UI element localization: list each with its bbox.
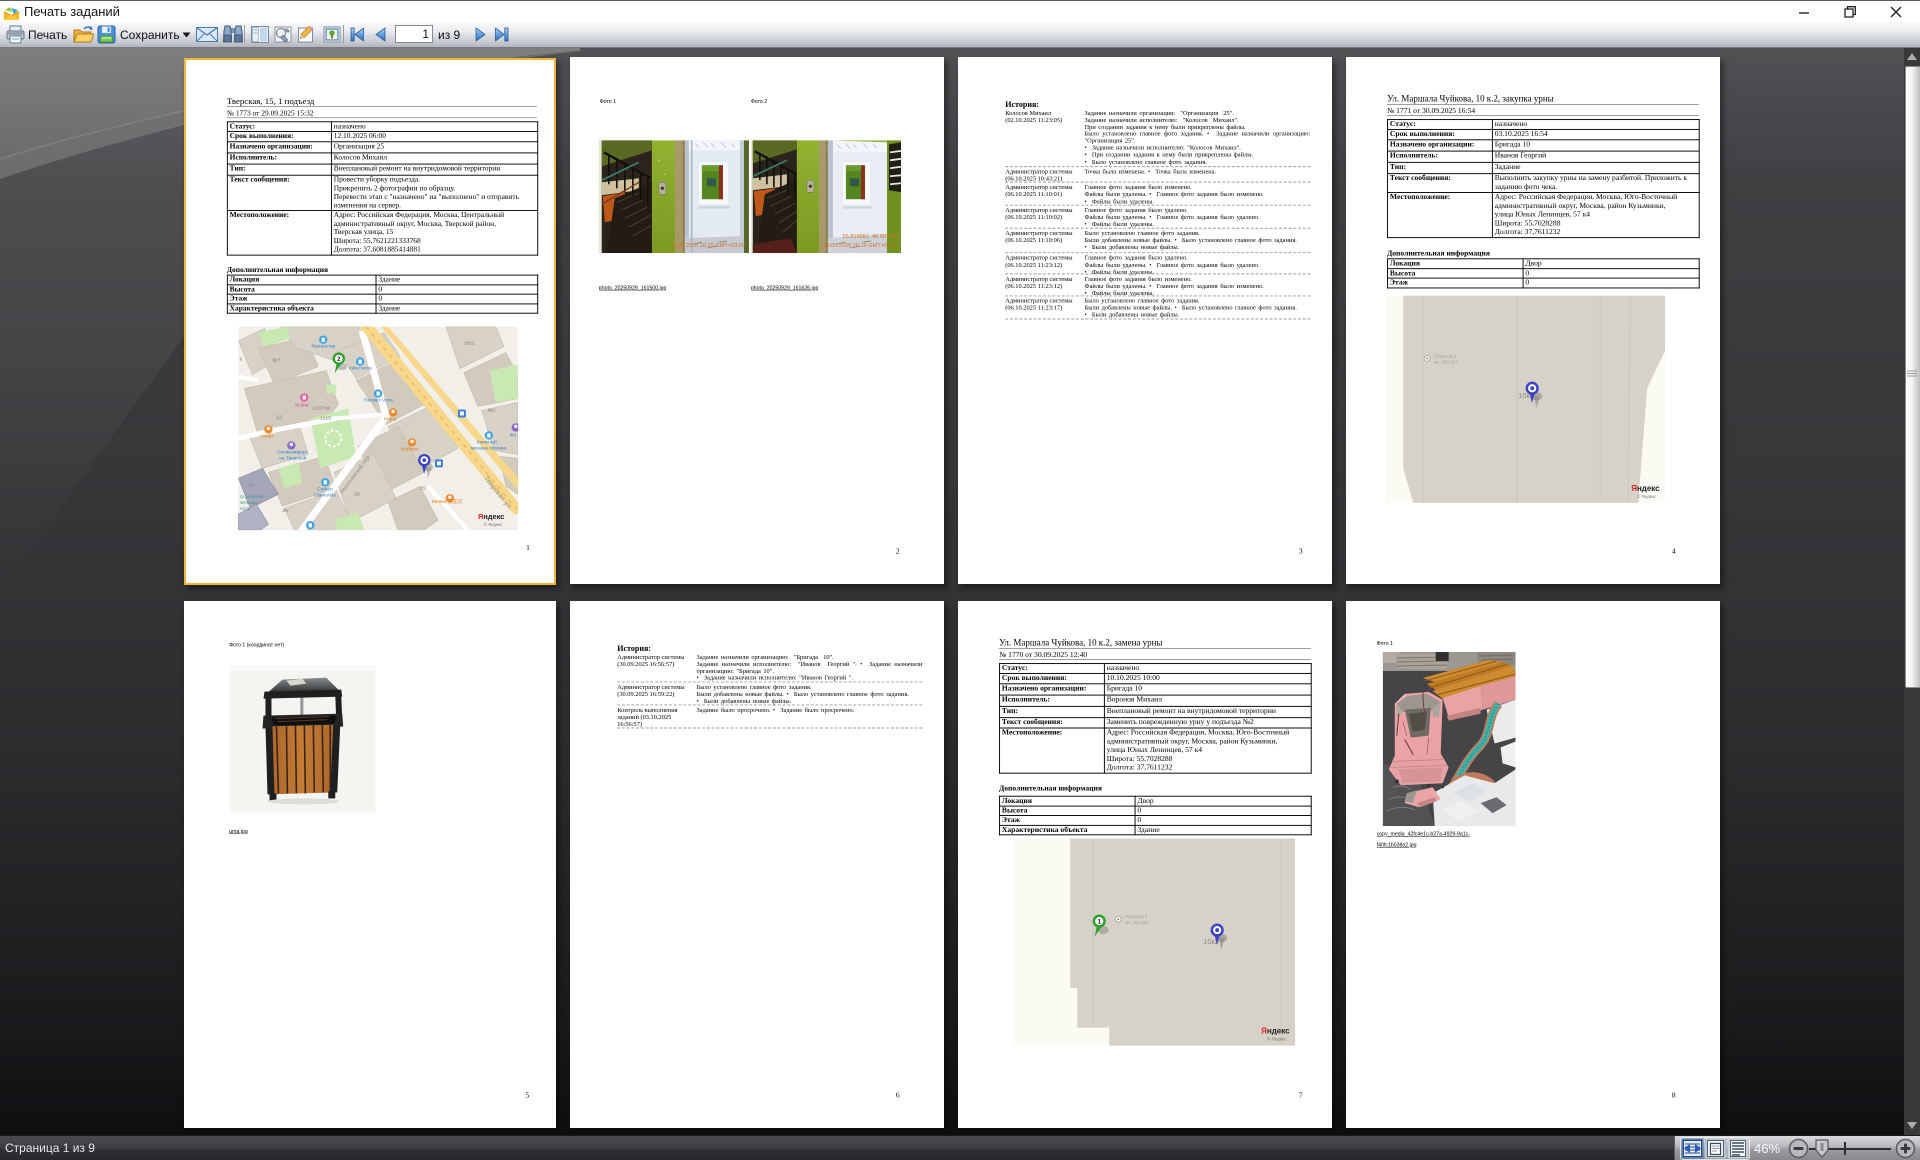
svg-text:© Яндекс: © Яндекс [1267, 1037, 1287, 1042]
svg-text:12: 12 [276, 414, 282, 420]
svg-text:на Тверской: на Тверской [279, 454, 306, 461]
svg-text:10с1: 10с1 [464, 341, 475, 347]
svg-text:Энергия Москвы: Энергия Москвы [298, 529, 335, 530]
svg-text:Nofilters: Nofilters [401, 446, 419, 452]
svg-text:Яндекс: Яндекс [478, 512, 505, 521]
svg-text:Certain: Certain [317, 486, 333, 492]
svg-text:Подъезд 2: Подъезд 2 [1125, 914, 1148, 919]
svg-text:Яндекс: Яндекс [1261, 1027, 1290, 1036]
svg-text:Ситикомфорт: Ситикомфорт [277, 449, 308, 455]
svg-text:6: 6 [239, 357, 242, 363]
svg-text:15: 15 [420, 485, 426, 491]
svg-text:Diamonds: Diamonds [314, 492, 336, 498]
svg-text:inka Home: inka Home [349, 366, 372, 372]
svg-text:Фо: Фо [510, 432, 517, 438]
svg-text:9с7: 9с7 [272, 358, 280, 364]
svg-text:29.09.2025 16:15 GMT+03:00: 29.09.2025 16:15 GMT+03:00 [670, 243, 745, 249]
svg-text:12с5: 12с5 [320, 415, 331, 421]
svg-text:кв. 162-327: кв. 162-327 [1125, 920, 1149, 925]
svg-text:Prime: Prime [384, 416, 397, 422]
svg-text:Чепек: Чепек [260, 433, 274, 439]
svg-text:кв. 162-327: кв. 162-327 [1434, 359, 1458, 364]
svg-text:Книжный: Книжный [477, 438, 497, 445]
svg-text:Mettea 美王汉: Mettea 美王汉 [432, 498, 462, 505]
svg-text:Rendez-Vous: Rendez-Vous [364, 397, 393, 403]
svg-text:29.09.2025 16:16 GMT+03:00: 29.09.2025 16:16 GMT+03:00 [823, 243, 898, 249]
svg-text:25: 25 [282, 508, 288, 514]
svg-text:тр развития: тр развития [239, 494, 264, 499]
svg-text:© Яндекс: © Яндекс [1637, 494, 1657, 499]
svg-text:магазин Москва: магазин Москва [471, 445, 507, 451]
svg-text:8к1: 8к1 [488, 407, 496, 413]
svg-text:© Яндекс: © Яндекс [484, 522, 502, 527]
svg-text:1: 1 [1097, 919, 1101, 926]
svg-text:лепницш: лепницш [239, 500, 258, 505]
svg-text:55.819991, 48.901166: 55.819991, 48.901166 [842, 234, 898, 240]
svg-text:Яндекс: Яндекс [1631, 484, 1660, 493]
svg-text:тасти: тасти [239, 506, 251, 511]
svg-text:М.бла: М.бла [295, 402, 309, 408]
svg-text:Подъезд 2: Подъезд 2 [1434, 353, 1457, 358]
svg-text:12/27с8: 12/27с8 [312, 405, 330, 411]
svg-text:26: 26 [354, 491, 360, 497]
svg-text:Фаланстер: Фаланстер [311, 344, 335, 350]
svg-text:10: 10 [248, 482, 254, 488]
